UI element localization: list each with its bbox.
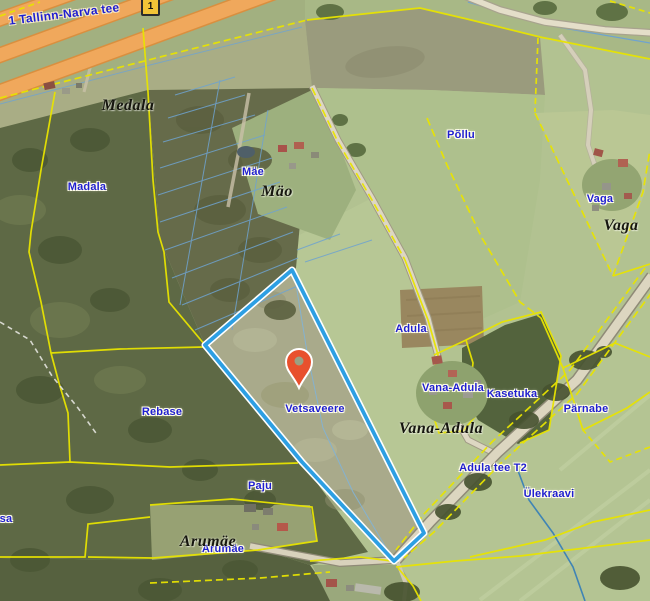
annotation-layer xyxy=(0,0,650,601)
map-container[interactable]: MadalaMäePõlluVagaAdulaVana-AdulaKasetuk… xyxy=(0,0,650,601)
location-marker-pin[interactable] xyxy=(286,349,312,388)
road-number-badge: 1 xyxy=(141,0,160,16)
